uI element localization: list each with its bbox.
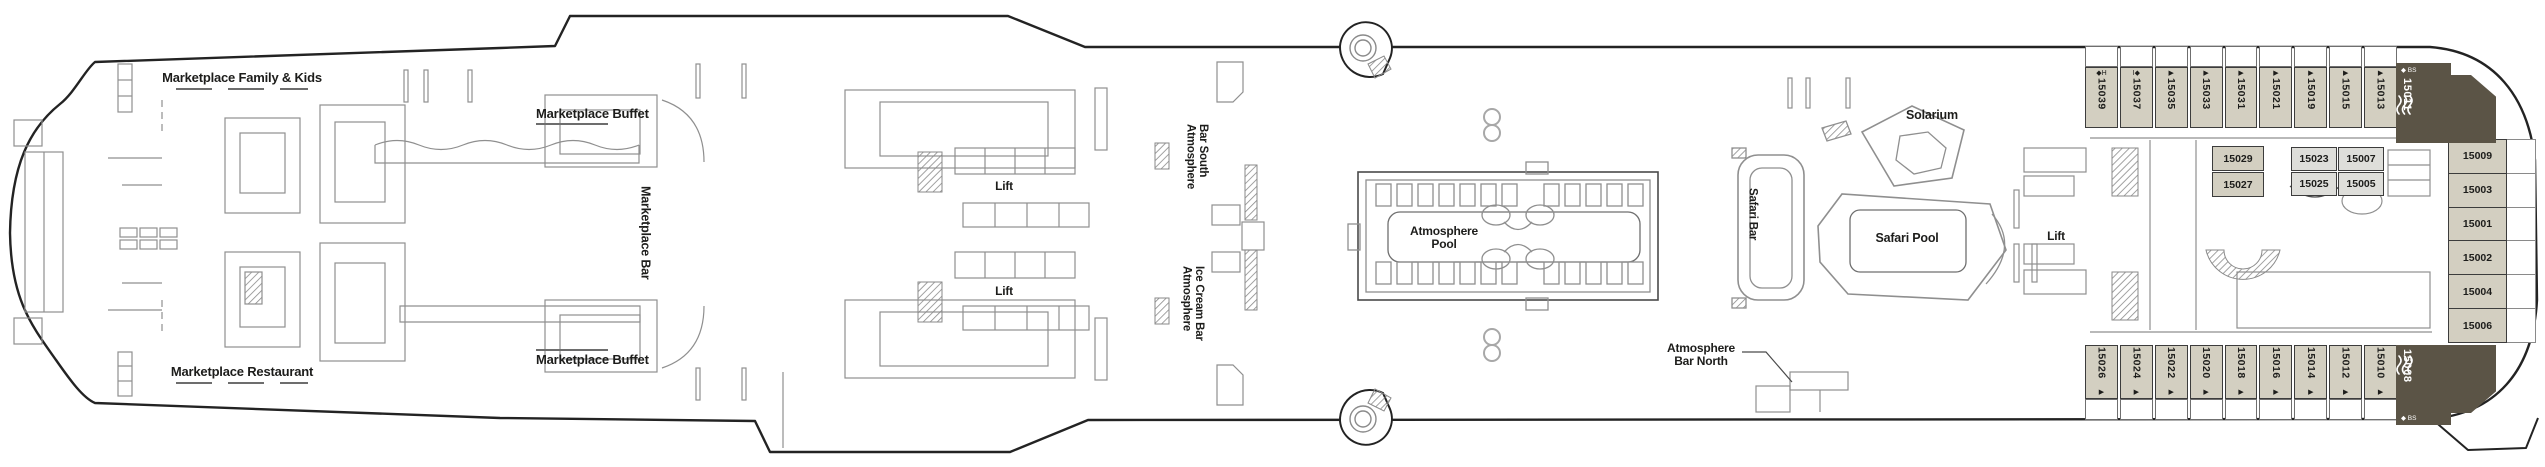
cabin-number: 15010 [2375, 347, 2387, 379]
label-atmosphere-pool: Atmosphere Pool [1390, 225, 1498, 251]
lounger [1376, 184, 1391, 206]
cabin-room: ▶15021 [2259, 67, 2292, 128]
cabin-room: ▶15033 [2190, 67, 2223, 128]
cabin-15007: 15007 [2338, 147, 2384, 171]
label-solarium: Solarium [1906, 109, 1958, 123]
cabin-balcony [2294, 399, 2327, 420]
cabin-15031: ▶15031 [2225, 46, 2258, 128]
lounger [1544, 184, 1559, 206]
cabin-15003: 15003 [2448, 174, 2536, 208]
cabin-number: 15012 [2340, 347, 2352, 379]
wave-icon [2396, 95, 2414, 115]
cabin-balcony [2225, 399, 2258, 420]
lounger [1460, 184, 1475, 206]
cabin-block-mid-b: 15023150071502515005 [2291, 147, 2384, 196]
lounger [1586, 184, 1601, 206]
cabin-number: 15004 [2448, 274, 2507, 309]
lounger [1628, 184, 1643, 206]
cabin-balcony [2120, 46, 2153, 67]
cabin-15039: ◆H15039 [2085, 46, 2118, 128]
lounger [1607, 184, 1622, 206]
cabin-15012: 15012▶ [2329, 345, 2362, 420]
cabin-15006: 15006 [2448, 309, 2536, 343]
cabin-number: 15020 [2200, 347, 2212, 379]
cabin-15004: 15004 [2448, 275, 2536, 309]
cabin-number: 15024 [2130, 347, 2142, 379]
cabin-marks: ▶ [2378, 69, 2383, 78]
cabin-number: 15006 [2448, 308, 2507, 343]
cabin-number: 15014 [2305, 347, 2317, 379]
cabin-room: 15026▶ [2085, 345, 2118, 399]
label-lift-forward-bottom: Lift [980, 285, 1028, 298]
cabin-number: 15033 [2200, 78, 2212, 110]
cabin-room: 15016▶ [2259, 345, 2292, 399]
label-lift-forward-top: Lift [980, 180, 1028, 193]
cabin-balcony [2507, 240, 2536, 275]
cabin-balcony [2329, 399, 2362, 420]
cabin-15016: 15016▶ [2259, 345, 2292, 420]
label-atmosphere-ice-cream-bar: Atmosphere Ice Cream Bar [1180, 266, 1205, 366]
cabin-number: 15019 [2305, 78, 2317, 110]
cabin-15019: ▶15019 [2294, 46, 2327, 128]
cabin-marks: I◆ [2133, 69, 2140, 78]
interior-walls [14, 62, 2432, 448]
cabin-balcony [2507, 308, 2536, 343]
cabin-marks: ▶ [2378, 388, 2383, 397]
cabin-15033: ▶15033 [2190, 46, 2223, 128]
cabin-block-mid-a: 1502915027 [2212, 146, 2264, 197]
lounger [1397, 262, 1412, 284]
cabin-balcony [2225, 46, 2258, 67]
cabin-15010: 15010▶ [2364, 345, 2397, 420]
lounger [1628, 262, 1643, 284]
lounger [1418, 262, 1433, 284]
label-underline [536, 123, 608, 125]
cabin-room: 15022▶ [2155, 345, 2188, 399]
cabin-room: I◆15037 [2120, 67, 2153, 128]
cabin-room: 15010▶ [2364, 345, 2397, 399]
cabin-marks: ▶ [2273, 69, 2278, 78]
cabin-balcony [2259, 399, 2292, 420]
cabin-marks: ▶ [2203, 69, 2208, 78]
lounger [1439, 262, 1454, 284]
cabin-balcony [2507, 139, 2536, 174]
lounger [1565, 184, 1580, 206]
cabin-15021: ▶15021 [2259, 46, 2292, 128]
cabin-balcony [2155, 399, 2188, 420]
cabin-15027: 15027 [2212, 172, 2264, 197]
cabin-balcony [2507, 274, 2536, 309]
deck-plan: Marketplace Family & Kids Marketplace Bu… [0, 0, 2545, 467]
cabin-number: 15026 [2095, 347, 2107, 379]
lounger [1418, 184, 1433, 206]
cabin-marks: ▶ [2238, 69, 2243, 78]
cabin-number: 15001 [2448, 207, 2507, 242]
cabin-balcony [2085, 399, 2118, 420]
cabin-number: 15003 [2448, 173, 2507, 208]
cabin-balcony [2085, 46, 2118, 67]
cabin-number: 15015 [2340, 78, 2352, 110]
cabin-balcony [2294, 46, 2327, 67]
label-atmosphere-bar-north: Atmosphere Bar North [1658, 342, 1744, 368]
cabin-balcony [2364, 399, 2397, 420]
cabin-balcony [2259, 46, 2292, 67]
cabin-15025: 15025 [2291, 172, 2337, 196]
lounger [1502, 262, 1517, 284]
cabin-15020: 15020▶ [2190, 345, 2223, 420]
cabin-balcony [2120, 399, 2153, 420]
wave-icon [2396, 355, 2414, 375]
cabin-balcony [2507, 173, 2536, 208]
cabin-15029: 15029 [2212, 146, 2264, 171]
cabin-15037: I◆15037 [2120, 46, 2153, 128]
cabin-marks: ◆ BS [2401, 66, 2416, 74]
cabin-15014: 15014▶ [2294, 345, 2327, 420]
cabin-marks: ▶ [2273, 388, 2278, 397]
cabin-room: 15020▶ [2190, 345, 2223, 399]
cabin-marks: ▶ [2308, 388, 2313, 397]
cabin-number: 15013 [2375, 78, 2387, 110]
lounger [1460, 262, 1475, 284]
lounger [1439, 184, 1454, 206]
cabin-number: 15035 [2165, 78, 2177, 110]
cabin-15018: 15018▶ [2225, 345, 2258, 420]
label-marketplace-buffet-bottom: Marketplace Buffet [536, 349, 666, 367]
cabin-15022: 15022▶ [2155, 345, 2188, 420]
cabin-number: 15022 [2165, 347, 2177, 379]
cabin-room: 15012▶ [2329, 345, 2362, 399]
cabin-balcony [2155, 46, 2188, 67]
cabin-marks: ▶ [2169, 388, 2174, 397]
lounger [1376, 262, 1391, 284]
cabin-balcony [2329, 46, 2362, 67]
cabin-room: ▶15019 [2294, 67, 2327, 128]
lounger [1481, 184, 1496, 206]
lounger [1502, 184, 1517, 206]
label-marketplace-restaurant: Marketplace Restaurant [152, 365, 332, 384]
cabin-balcony [2190, 46, 2223, 67]
cabin-room: ▶15035 [2155, 67, 2188, 128]
cabin-15009: 15009 [2448, 140, 2536, 174]
cabin-room: ◆H15039 [2085, 67, 2118, 128]
cabin-marks: ▶ [2308, 69, 2313, 78]
cabin-room: 15014▶ [2294, 345, 2327, 399]
cabin-marks: ◆H [2096, 69, 2106, 78]
label-overline [536, 349, 608, 351]
cabin-row-top: ◆H15039I◆15037▶15035▶15033▶15031▶15021▶1… [2085, 46, 2397, 128]
cabin-number: 15031 [2235, 78, 2247, 110]
cabin-marks: ▶ [2099, 388, 2104, 397]
cabin-15001: 15001 [2448, 208, 2536, 242]
cabin-number: 15039 [2095, 78, 2107, 110]
label-marketplace-family-kids: Marketplace Family & Kids [158, 71, 326, 90]
cabin-number: 15002 [2448, 240, 2507, 275]
cabin-marks: ◆ BS [2401, 414, 2416, 422]
cabin-number: 15021 [2270, 78, 2282, 110]
label-atmosphere-bar-south: Atmosphere Bar South [1184, 124, 1209, 214]
cabin-number: 15016 [2270, 347, 2282, 379]
cabin-marks: ▶ [2343, 388, 2348, 397]
cabin-marks: ▶ [2169, 69, 2174, 78]
cabin-15023: 15023 [2291, 147, 2337, 171]
cabin-number: 15009 [2448, 139, 2507, 174]
cabin-column-stern: 150091500315001150021500415006 [2448, 140, 2536, 343]
spiral-stair [2206, 250, 2280, 279]
cabin-balcony [2364, 46, 2397, 67]
label-dashes [176, 382, 308, 384]
cabin-15005: 15005 [2338, 172, 2384, 196]
cabin-room: 15018▶ [2225, 345, 2258, 399]
cabin-number: 15018 [2235, 347, 2247, 379]
label-safari-bar: Safari Bar [1746, 188, 1758, 283]
cabin-marks: ▶ [2343, 69, 2348, 78]
cabin-15026: 15026▶ [2085, 345, 2118, 420]
cabin-15002: 15002 [2448, 241, 2536, 275]
lounger [1586, 262, 1601, 284]
cabin-marks: ▶ [2238, 388, 2243, 397]
lounger [1397, 184, 1412, 206]
label-safari-pool: Safari Pool [1852, 232, 1962, 246]
cabin-room: 15024▶ [2120, 345, 2153, 399]
label-marketplace-bar: Marketplace Bar [638, 186, 652, 298]
cabin-marks: ▶ [2134, 388, 2139, 397]
cabin-number: 15037 [2130, 78, 2142, 110]
cabin-room: ▶15013 [2364, 67, 2397, 128]
cabin-row-bottom: 15026▶15024▶15022▶15020▶15018▶15016▶1501… [2085, 345, 2397, 420]
cabin-15035: ▶15035 [2155, 46, 2188, 128]
cabin-15015: ▶15015 [2329, 46, 2362, 128]
cabin-balcony [2190, 399, 2223, 420]
label-lift-aft: Lift [2032, 230, 2080, 243]
cabin-15024: 15024▶ [2120, 345, 2153, 420]
label-marketplace-buffet-top: Marketplace Buffet [536, 107, 666, 125]
cabin-room: ▶15015 [2329, 67, 2362, 128]
label-dashes [176, 88, 308, 90]
cabin-15013: ▶15013 [2364, 46, 2397, 128]
lounger [1565, 262, 1580, 284]
cabin-balcony [2507, 207, 2536, 242]
cabin-marks: ▶ [2203, 388, 2208, 397]
cabin-room: ▶15031 [2225, 67, 2258, 128]
lounger [1607, 262, 1622, 284]
lounger [1481, 262, 1496, 284]
